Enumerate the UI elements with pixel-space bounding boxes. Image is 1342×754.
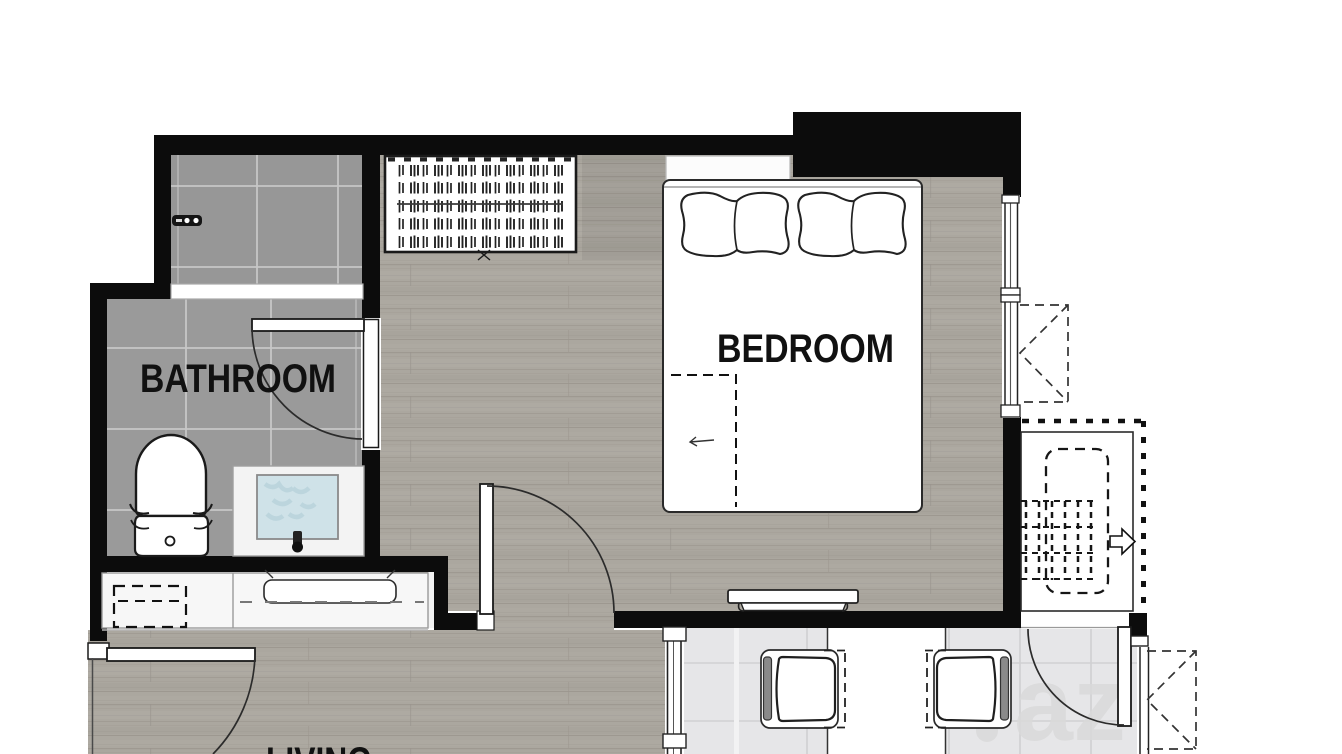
svg-text:az: az bbox=[1014, 645, 1126, 754]
svg-text:LIVING: LIVING bbox=[266, 740, 372, 754]
svg-text:BEDROOM: BEDROOM bbox=[717, 327, 894, 371]
svg-text:BATHROOM: BATHROOM bbox=[140, 357, 336, 401]
